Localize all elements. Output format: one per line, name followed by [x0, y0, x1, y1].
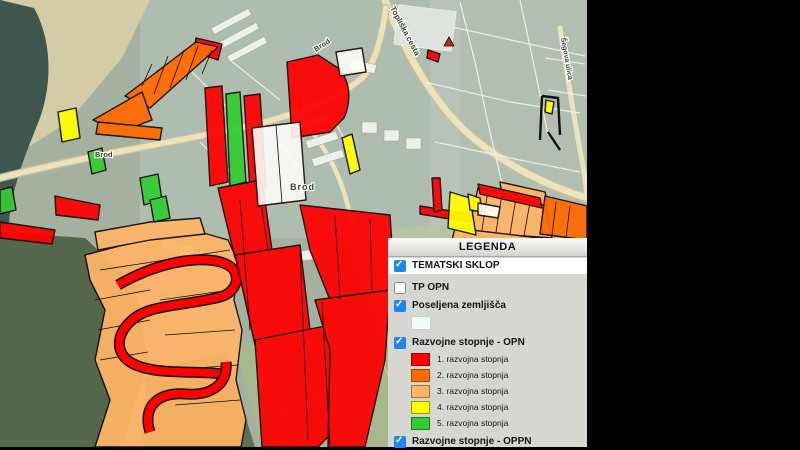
- checkbox-opn[interactable]: [394, 337, 406, 349]
- stage3-label: 3. razvojna stopnja: [437, 384, 508, 399]
- stage5-swatch: [411, 417, 430, 430]
- poseljena-swatch: [411, 316, 431, 330]
- stage1-swatch: [411, 353, 430, 366]
- legend-row-oppn[interactable]: Razvojne stopnje - OPPN: [388, 434, 587, 450]
- stage2-label: 2. razvojna stopnja: [437, 368, 508, 383]
- legend-label-tp-opn: TP OPN: [412, 280, 449, 296]
- stage5-label: 5. razvojna stopnja: [437, 416, 508, 431]
- legend-item-stage3: 3. razvojna stopnja: [388, 384, 587, 399]
- checkbox-oppn[interactable]: [394, 436, 406, 448]
- stage2-swatch: [411, 369, 430, 382]
- stage1-label: 1. razvojna stopnja: [437, 352, 508, 367]
- legend-title: LEGENDA: [388, 239, 587, 257]
- label-brod-center: Brod: [290, 182, 315, 192]
- legend-row-opn[interactable]: Razvojne stopnje - OPN: [388, 335, 587, 351]
- legend-item-stage5: 5. razvojna stopnja: [388, 416, 587, 431]
- legend-panel: LEGENDA TEMATSKI SKLOP TP OPN Poseljena …: [388, 238, 587, 447]
- stage3-swatch: [411, 385, 430, 398]
- legend-label-tematski-sklop: TEMATSKI SKLOP: [412, 258, 500, 274]
- gis-viewer: Brod Brod Brod Topliška cesta Šegova uli…: [0, 0, 800, 450]
- legend-item-stage1: 1. razvojna stopnja: [388, 352, 587, 367]
- stage4-label: 4. razvojna stopnja: [437, 400, 508, 415]
- legend-label-poseljena: Poseljena zemljišča: [412, 298, 506, 314]
- legend-item-stage4: 4. razvojna stopnja: [388, 400, 587, 415]
- checkbox-tematski-sklop[interactable]: [394, 260, 406, 272]
- legend-row-poseljena[interactable]: Poseljena zemljišča: [388, 298, 587, 314]
- checkbox-tp-opn[interactable]: [394, 282, 406, 294]
- stage4-swatch: [411, 401, 430, 414]
- legend-item-stage2: 2. razvojna stopnja: [388, 368, 587, 383]
- legend-row-poseljena-swatch: [388, 316, 587, 331]
- checkbox-poseljena[interactable]: [394, 300, 406, 312]
- legend-row-tematski-sklop[interactable]: TEMATSKI SKLOP: [388, 258, 587, 274]
- label-brod-left: Brod: [95, 150, 113, 159]
- legend-row-tp-opn[interactable]: TP OPN: [388, 280, 587, 296]
- legend-label-opn: Razvojne stopnje - OPN: [412, 335, 525, 351]
- legend-label-oppn: Razvojne stopnje - OPPN: [412, 434, 531, 450]
